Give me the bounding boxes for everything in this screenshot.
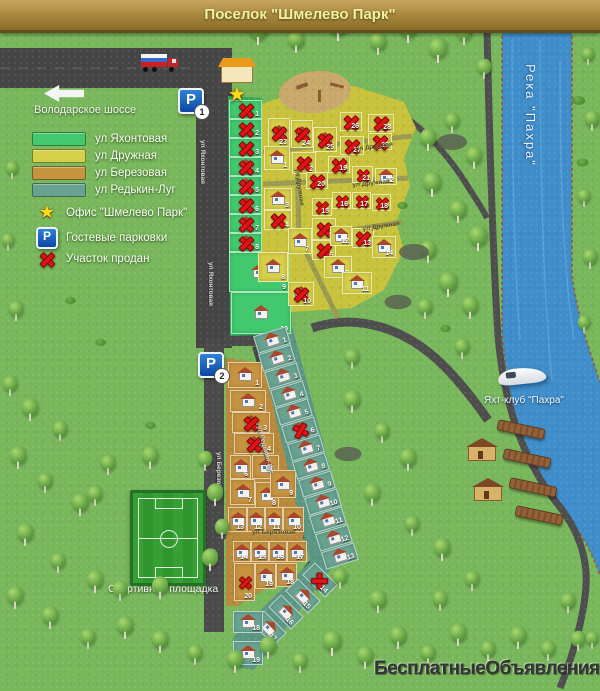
tree-trunk <box>17 462 19 469</box>
tree-trunk <box>11 173 12 179</box>
tree-trunk <box>337 32 339 41</box>
tree-trunk <box>295 46 297 53</box>
tree-trunk <box>221 532 223 538</box>
tree-trunk <box>267 652 269 659</box>
tree-trunk <box>577 644 579 650</box>
legend-street-label: ул Яхонтовая <box>95 133 167 145</box>
tree-trunk <box>587 59 588 65</box>
settlement-map: 1234567891012345678910111213141516171819… <box>0 0 600 691</box>
legend-street-4: ул Редькин-Луг <box>32 183 176 197</box>
office-star-icon: ★ <box>32 202 62 223</box>
tree-trunk <box>49 622 51 629</box>
tree-trunk <box>424 312 426 318</box>
tree-trunk <box>15 314 17 320</box>
tree-trunk <box>483 72 485 78</box>
parking-icon: P <box>32 227 62 249</box>
settlement-title: Поселок "Шмелево Парк" <box>0 0 600 29</box>
tree-trunk <box>473 162 475 169</box>
tree-trunk <box>339 582 341 588</box>
tree-trunk <box>149 462 151 469</box>
tree-trunk <box>94 586 96 593</box>
tree-trunk <box>469 312 471 319</box>
tree-trunk <box>427 144 429 151</box>
bush-icon <box>95 339 105 346</box>
tree-trunk <box>381 436 383 442</box>
legend-color-swatch <box>32 166 86 180</box>
tree-trunk <box>589 262 591 268</box>
bush-icon <box>145 422 155 429</box>
legend-color-swatch <box>32 149 86 163</box>
tree-trunk <box>411 529 413 535</box>
tree-trunk <box>159 646 161 653</box>
tree-trunk <box>7 245 8 251</box>
ground-shadow <box>437 134 467 150</box>
tree-trunk <box>79 509 81 516</box>
tree-trunk <box>159 592 161 599</box>
tree-trunk <box>431 189 433 197</box>
tree-trunk <box>471 584 473 590</box>
bush-icon <box>577 158 589 166</box>
tree-trunk <box>331 648 333 656</box>
tree-trunk <box>257 37 259 45</box>
tree-trunk <box>583 201 584 207</box>
tree-trunk <box>107 468 109 474</box>
tree-trunk <box>299 666 301 672</box>
tree-trunk <box>194 658 196 664</box>
tree-trunk <box>364 662 366 669</box>
legend-street-label: ул Редькин-Луг <box>95 184 176 196</box>
title-banner: Поселок "Шмелево Парк" <box>0 0 600 33</box>
ground-shadow <box>399 244 429 260</box>
tree-trunk <box>59 434 61 440</box>
legend-symbol-office-star: ★Офис "Шмелево Парк" <box>32 202 187 223</box>
tree-trunk <box>477 243 479 251</box>
tree-trunk <box>57 566 59 572</box>
bush-icon <box>397 202 407 209</box>
tree-trunk <box>204 464 206 470</box>
tree-trunk <box>591 643 592 649</box>
legend-symbol-label: Участок продан <box>66 253 149 265</box>
tree-trunk <box>451 126 453 132</box>
tree-trunk <box>377 48 379 55</box>
bush-icon <box>572 96 585 105</box>
legend-color-swatch <box>32 183 86 197</box>
tree-trunk <box>397 642 399 649</box>
legend-street-label: ул Дружная <box>95 150 157 162</box>
tree-trunk <box>567 606 569 612</box>
tree-trunk <box>457 639 459 646</box>
tree-trunk <box>437 55 439 63</box>
tree-trunk <box>44 486 46 492</box>
tree-trunk <box>351 362 353 368</box>
tree-trunk <box>124 632 126 639</box>
tree-trunk <box>371 499 373 506</box>
tree-trunk <box>29 414 31 421</box>
tree-trunk <box>591 124 593 130</box>
legend-street-3: ул Березовая <box>32 166 167 180</box>
legend-color-swatch <box>32 132 86 146</box>
tree-trunk <box>457 216 459 223</box>
tree-trunk <box>24 539 26 546</box>
legend-symbol-label: Офис "Шмелево Парк" <box>66 207 187 219</box>
ground-shadow <box>335 447 362 461</box>
tree-trunk <box>441 554 443 561</box>
tree-trunk <box>119 594 121 600</box>
tree-trunk <box>14 602 16 609</box>
sold-x-icon <box>32 252 62 266</box>
tree-trunk <box>377 606 379 613</box>
bush-icon <box>65 297 75 304</box>
legend-symbol-sold-x: Участок продан <box>32 252 149 266</box>
tree-trunk <box>461 352 463 358</box>
tree-trunk <box>517 642 519 649</box>
tree-trunk <box>87 642 89 648</box>
bush-icon <box>440 325 450 332</box>
tree-trunk <box>447 289 449 297</box>
tree-trunk <box>463 38 465 45</box>
ground-shadow <box>385 295 412 309</box>
tree-trunk <box>214 499 216 506</box>
tree-trunk <box>407 464 409 471</box>
tree-trunk <box>234 666 236 673</box>
tree-trunk <box>427 256 429 263</box>
legend-symbol-label: Гостевые парковки <box>66 232 167 244</box>
legend-symbol-parking: PГостевые парковки <box>32 227 167 249</box>
tree-trunk <box>9 389 11 395</box>
tree-trunk <box>209 564 211 571</box>
legend-street-1: ул Яхонтовая <box>32 132 167 146</box>
tree-trunk <box>407 35 409 43</box>
watermark: БесплатныеОбъявления.рф <box>374 658 600 680</box>
tree-trunk <box>583 327 584 333</box>
legend-street-label: ул Березовая <box>95 167 167 179</box>
legend-street-2: ул Дружная <box>32 149 157 163</box>
tree-trunk <box>94 499 96 505</box>
tree-trunk <box>351 406 353 413</box>
tree-trunk <box>439 604 441 610</box>
vegetation-layer <box>0 0 600 691</box>
